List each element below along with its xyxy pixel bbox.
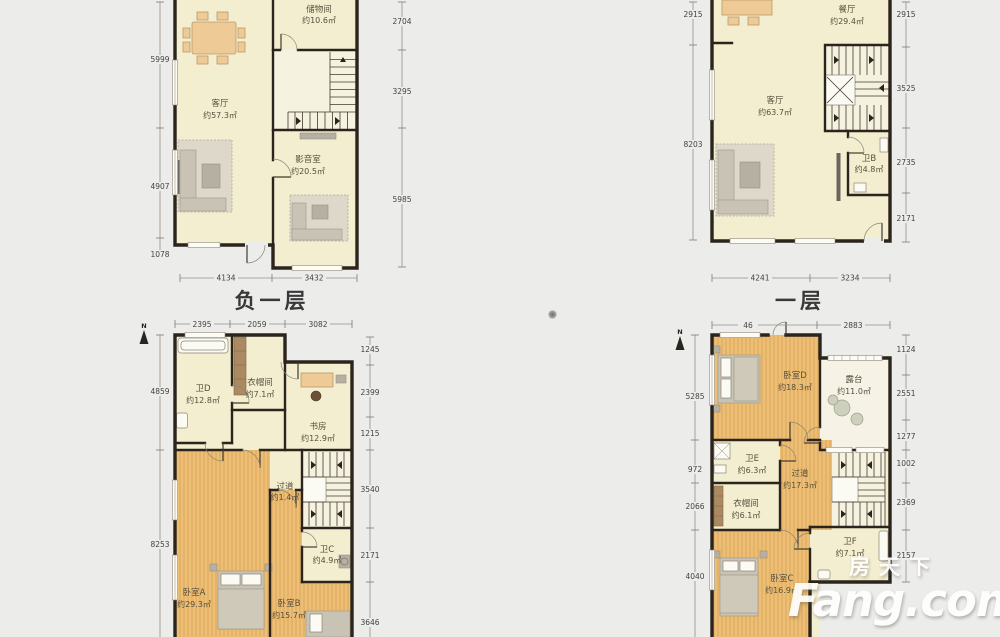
dim-label: 2883 <box>843 321 862 330</box>
floorplan-bedroom-level: N 卫D 约12.8㎡ 衣帽间 约7.1㎡ 书房 约12.9㎡ 过道 约1.4㎡… <box>130 315 430 637</box>
room-label: 卫C <box>320 545 335 555</box>
floorplan-first-floor: 餐厅 约29.4㎡ 客厅 约63.7㎡ 卫B 约4.8㎡ 2915 8203 2… <box>660 0 1000 320</box>
room-area: 约4.8㎡ <box>855 164 884 174</box>
room-area: 约57.3㎡ <box>203 110 237 120</box>
room-area: 约18.3㎡ <box>778 382 812 392</box>
floorplan-basement: 储物间 约10.6㎡ 客厅 约57.3㎡ 影音室 约20.5㎡ 5999 490… <box>140 0 430 320</box>
room-label: 卫F <box>843 537 857 547</box>
room-area: 约6.3㎡ <box>738 465 767 475</box>
plan-title-basement: 负一层 <box>235 289 310 313</box>
room-label: 书房 <box>309 421 326 432</box>
dim-label: 2704 <box>392 17 411 26</box>
dim-label: 3234 <box>840 274 859 283</box>
room-label: 卧室D <box>783 370 807 381</box>
north-arrow: N <box>140 322 149 344</box>
room-area: 约6.1㎡ <box>732 510 761 520</box>
dim-label: 5285 <box>685 392 704 401</box>
dim-label: 4907 <box>150 182 169 191</box>
svg-text:N: N <box>141 322 146 330</box>
room-area: 约17.3㎡ <box>783 480 817 490</box>
artifact-dot <box>548 310 557 319</box>
dim-label: 2915 <box>896 10 915 19</box>
room-label: 卧室A <box>183 587 206 598</box>
room-area: 约10.6㎡ <box>302 15 336 25</box>
room-area: 约11.0㎡ <box>837 386 871 396</box>
room-area: 约29.3㎡ <box>177 599 211 609</box>
dim-label: 5985 <box>392 195 411 204</box>
room-label: 影音室 <box>295 154 321 165</box>
dim-label: 1245 <box>360 345 379 354</box>
room-label: 卫B <box>862 154 877 164</box>
room-label: 过道 <box>276 481 294 492</box>
room-area: 约12.9㎡ <box>301 433 335 443</box>
room-area: 约7.1㎡ <box>246 389 275 399</box>
dim-label: 2369 <box>896 498 915 507</box>
dim-label: 3525 <box>896 84 915 93</box>
dim-label: 2735 <box>896 158 915 167</box>
dim-label: 46 <box>743 321 753 330</box>
dim-label: 2157 <box>896 551 915 560</box>
dim-label: 5999 <box>150 55 169 64</box>
room-label: 客厅 <box>766 95 784 106</box>
room-area: 约20.5㎡ <box>291 166 325 176</box>
dim-label: 1124 <box>896 345 915 354</box>
dim-label: 2915 <box>683 10 702 19</box>
room-area: 约1.4㎡ <box>271 492 300 502</box>
room-area: 约16.9㎡ <box>765 585 799 595</box>
room-area: 约4.9㎡ <box>313 555 342 565</box>
floorplan-sheet: 储物间 约10.6㎡ 客厅 约57.3㎡ 影音室 约20.5㎡ 5999 490… <box>0 0 1000 637</box>
room-area: 约29.4㎡ <box>830 16 864 26</box>
dim-label: 2059 <box>247 320 266 329</box>
dim-label: 4134 <box>216 274 235 283</box>
north-arrow: N <box>676 328 685 350</box>
dim-label: 3432 <box>304 274 323 283</box>
dim-label: 2551 <box>896 389 915 398</box>
dim-label: 2171 <box>896 214 915 223</box>
dim-label: 3082 <box>308 320 327 329</box>
room-label: 过道 <box>791 468 809 479</box>
room-label: 客厅 <box>211 98 229 109</box>
dim-label: 1002 <box>896 459 915 468</box>
floorplan-upper-bedroom-level: N 卧室D 约18.3㎡ 露台 约11.0㎡ 卫E 约6.3㎡ 过道 约17.3… <box>660 315 1000 637</box>
room-label: 露台 <box>845 374 862 385</box>
dim-label: 1277 <box>896 432 915 441</box>
room-label: 卧室C <box>771 573 794 584</box>
dim-label: 4040 <box>685 572 704 581</box>
plan-title-first-floor: 一层 <box>775 289 825 313</box>
svg-text:N: N <box>677 328 682 336</box>
room-area: 约12.8㎡ <box>186 395 220 405</box>
dim-label: 8253 <box>150 540 169 549</box>
room-area: 约7.1㎡ <box>836 548 865 558</box>
dim-label: 2395 <box>192 320 211 329</box>
room-label: 卫E <box>745 454 759 464</box>
room-label: 餐厅 <box>838 5 856 15</box>
room-area: 约63.7㎡ <box>758 107 792 117</box>
dim-label: 972 <box>688 465 703 474</box>
dim-label: 2399 <box>360 388 379 397</box>
room-label: 卧室B <box>278 598 301 609</box>
dim-label: 8203 <box>683 140 702 149</box>
room-label: 卫D <box>195 384 211 394</box>
dim-label: 4859 <box>150 387 169 396</box>
dim-label: 3540 <box>360 485 379 494</box>
dim-label: 1078 <box>150 250 169 259</box>
dim-label: 3646 <box>360 618 379 627</box>
room-area: 约15.7㎡ <box>272 610 306 620</box>
dim-label: 2066 <box>685 502 704 511</box>
dim-label: 4241 <box>750 274 769 283</box>
room-label: 储物间 <box>306 4 332 15</box>
room-label: 衣帽间 <box>733 498 759 509</box>
dim-label: 2171 <box>360 551 379 560</box>
dim-label: 1215 <box>360 429 379 438</box>
room-label: 衣帽间 <box>247 377 273 388</box>
dim-label: 3295 <box>392 87 411 96</box>
